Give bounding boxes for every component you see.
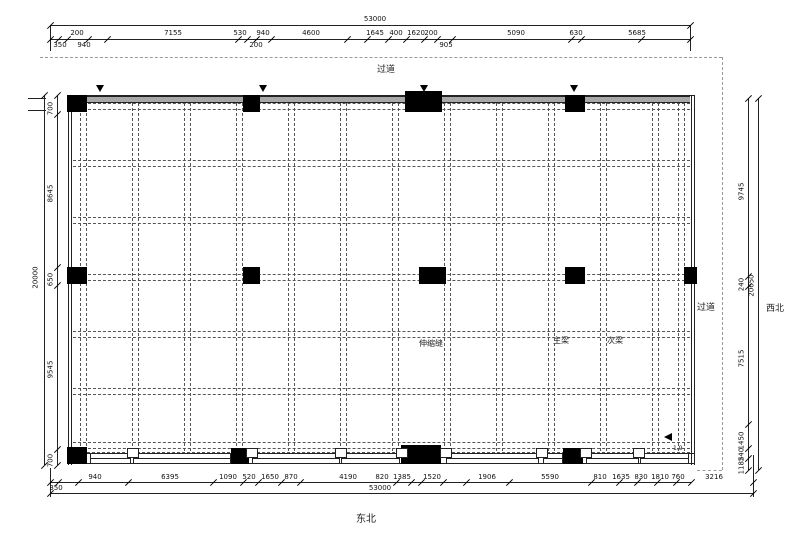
floor-plan-drawing: 53000 53000 20000 20650 过道 过道 西北 东北 伸缩缝 … <box>0 0 800 539</box>
bottom-total-dim: 53000 <box>369 485 391 492</box>
ref-stub-2 <box>28 110 46 111</box>
compass-right-label: 西北 <box>766 304 784 314</box>
beam-axis-horizontal <box>73 166 690 167</box>
beam-axis-vertical <box>606 103 607 451</box>
beam-axis-horizontal <box>73 448 690 449</box>
beam-axis-vertical <box>184 103 185 451</box>
column <box>684 267 697 284</box>
top-wall-band <box>70 96 690 103</box>
bottom-total-dim-line <box>50 493 753 494</box>
corridor-right-label: 过道 <box>697 303 715 313</box>
beam-axis-vertical <box>392 103 393 451</box>
column <box>565 95 585 112</box>
dim-tick <box>745 467 752 474</box>
window <box>90 453 131 464</box>
bottom-dim-segment: 1385 <box>393 474 411 481</box>
beam-axis-horizontal <box>73 442 690 443</box>
left-segment-dim-line <box>57 95 58 465</box>
dim-tick <box>755 467 762 474</box>
beam-axis-horizontal <box>73 217 690 218</box>
bottom-dim-segment: 1906 <box>478 474 496 481</box>
window-tab <box>440 448 452 458</box>
left-dim-segment: 9545 <box>48 348 55 392</box>
bottom-dim-segment: 3216 <box>705 474 723 481</box>
direction-arrow-icon <box>259 85 267 92</box>
beam-axis-vertical <box>346 103 347 451</box>
bottom-dim-segment: 870 <box>284 474 297 481</box>
window-sill-line <box>253 458 339 459</box>
top-dim-segment: 5090 <box>507 30 525 37</box>
top-dim-sub: 940 <box>77 42 90 49</box>
beam-axis-vertical <box>398 103 399 451</box>
window-sill-line <box>134 458 230 459</box>
window-sill-line <box>447 458 538 459</box>
beam-axis-horizontal <box>73 103 690 104</box>
left-dim-segment: 650 <box>48 258 55 302</box>
beam-axis-vertical <box>138 103 139 451</box>
column <box>67 267 87 284</box>
beam-axis-vertical <box>554 103 555 451</box>
column <box>67 447 87 464</box>
right-dim-segment: 7515 <box>739 337 746 381</box>
window <box>446 453 539 464</box>
top-dim-segment: 630 <box>569 30 582 37</box>
beam-axis-vertical <box>132 103 133 451</box>
ref-stub-1 <box>28 98 46 99</box>
direction-arrow-icon <box>570 85 578 92</box>
beam-axis-horizontal <box>73 274 690 275</box>
beam-axis-horizontal <box>73 337 690 338</box>
beam-axis-vertical <box>496 103 497 451</box>
entrance-arrow-icon <box>664 433 672 441</box>
window-sill-line <box>342 458 399 459</box>
window-tab <box>246 448 258 458</box>
beam-axis-vertical <box>340 103 341 451</box>
column <box>243 95 260 112</box>
window-sill-line <box>544 458 562 459</box>
expansion-joint-label: 伸缩缝 <box>419 339 443 349</box>
window-tab <box>633 448 645 458</box>
beam-axis-vertical <box>678 103 679 451</box>
beam-axis-vertical <box>190 103 191 451</box>
left-dim-segment: 700 <box>48 439 55 483</box>
column <box>243 267 260 284</box>
compass-bottom-label: 东北 <box>356 515 376 525</box>
beam-axis-vertical <box>236 103 237 451</box>
top-dim-segment: 4600 <box>302 30 320 37</box>
bottom-dim-segment: 4190 <box>339 474 357 481</box>
left-total-dim: 20000 <box>33 256 40 300</box>
site-boundary-right <box>722 57 723 470</box>
beam-axis-vertical <box>294 103 295 451</box>
bottom-dim-segment: 820 <box>375 474 388 481</box>
top-dim-segment: 7155 <box>164 30 182 37</box>
beam-axis-vertical <box>548 103 549 451</box>
direction-arrow-icon <box>420 85 428 92</box>
right-dim-segment: 9745 <box>739 170 746 214</box>
corridor-top-label: 过道 <box>377 65 395 75</box>
window <box>133 453 231 464</box>
window <box>341 453 400 464</box>
column <box>405 91 442 112</box>
beam-axis-horizontal <box>73 160 690 161</box>
right-total-dim-line <box>758 98 759 470</box>
top-dim-sub: 200 <box>249 42 262 49</box>
beam-axis-vertical <box>658 103 659 451</box>
bottom-segment-dim-line <box>50 482 691 483</box>
bottom-dim-segment: 1090 <box>219 474 237 481</box>
site-boundary-bottom-stub <box>697 470 722 471</box>
window-tab <box>127 448 139 458</box>
top-segment-dim-line <box>50 39 690 40</box>
beam-axis-vertical <box>450 103 451 451</box>
window-tab <box>335 448 347 458</box>
dim-tick <box>688 479 695 486</box>
beam-axis-horizontal <box>73 394 690 395</box>
column <box>67 95 87 112</box>
window <box>640 453 689 464</box>
bottom-dim-segment: 6395 <box>161 474 179 481</box>
bottom-dim-segment: 1520 <box>423 474 441 481</box>
beam-axis-horizontal <box>73 331 690 332</box>
beam-axis-horizontal <box>73 388 690 389</box>
site-boundary-top <box>40 57 722 58</box>
beam-axis-horizontal <box>73 109 690 110</box>
right-dim-segment: 240 <box>739 263 746 307</box>
dim-tick <box>54 462 61 469</box>
beam-axis-horizontal <box>73 280 690 281</box>
column <box>565 267 585 284</box>
top-dim-segment: 200 <box>70 30 83 37</box>
beam-axis-vertical <box>288 103 289 451</box>
window-sill-line <box>641 458 688 459</box>
top-total-dim: 53000 <box>364 16 386 23</box>
bottom-dim-segment: 1650 <box>261 474 279 481</box>
window <box>586 453 639 464</box>
top-total-dim-line <box>50 25 690 26</box>
window <box>252 453 340 464</box>
column <box>419 267 446 284</box>
bottom-dim-segment: 810 <box>593 474 606 481</box>
beam-axis-horizontal <box>73 223 690 224</box>
left-dim-segment: 700 <box>48 87 55 131</box>
direction-arrow-icon <box>96 85 104 92</box>
bottom-dim-segment: 830 <box>634 474 647 481</box>
left-dim-segment: 8645 <box>48 172 55 216</box>
bottom-dim-segment: 940 <box>88 474 101 481</box>
window-sill-line <box>587 458 638 459</box>
beam-axis-vertical <box>652 103 653 451</box>
window-sill-line <box>91 458 130 459</box>
window-tab <box>580 448 592 458</box>
beam-axis-vertical <box>600 103 601 451</box>
top-dim-sub: 905 <box>439 42 452 49</box>
window-tab <box>396 448 408 458</box>
window-tab <box>536 448 548 458</box>
bottom-dim-segment: 5590 <box>541 474 559 481</box>
beam-axis-vertical <box>502 103 503 451</box>
left-total-dim-line <box>44 95 45 465</box>
